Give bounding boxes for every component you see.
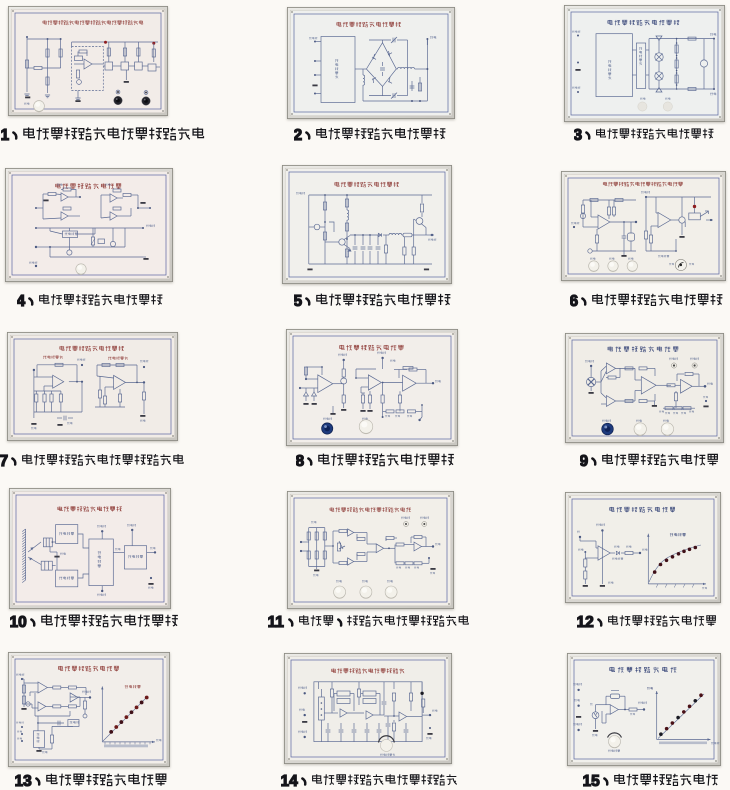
- svg-text:9: 9: [580, 453, 589, 470]
- svg-text:4: 4: [17, 293, 26, 310]
- svg-text:6: 6: [570, 293, 579, 310]
- svg-text:3: 3: [574, 127, 583, 144]
- svg-text:14: 14: [281, 773, 298, 790]
- svg-text:8: 8: [296, 453, 305, 470]
- svg-text:10: 10: [10, 614, 27, 631]
- svg-text:15: 15: [583, 773, 600, 790]
- svg-text:12: 12: [577, 614, 594, 631]
- svg-text:13: 13: [15, 773, 32, 790]
- svg-text:5: 5: [294, 293, 303, 310]
- svg-text:7: 7: [0, 453, 8, 470]
- svg-text:11: 11: [268, 614, 284, 631]
- svg-text:2: 2: [294, 127, 302, 144]
- svg-text:1: 1: [1, 127, 10, 144]
